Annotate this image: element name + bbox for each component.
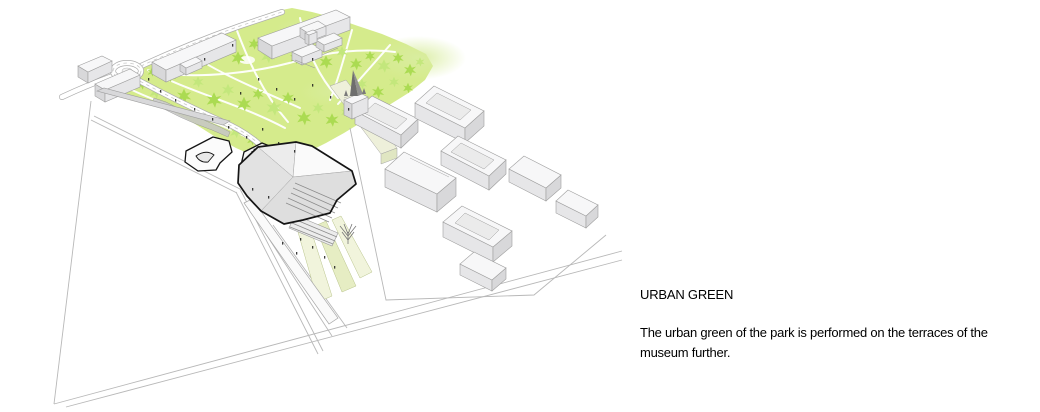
museum-forecourt-building [185,137,232,171]
city-block [415,86,484,143]
museum-complex [185,137,356,224]
caption-body-line-1: The urban green of the park is performed… [640,323,1038,343]
city-block [460,252,506,291]
page: URBAN GREEN The urban green of the park … [0,0,1040,412]
caption-body-line-2: museum further. [640,343,1038,363]
caption-body: The urban green of the park is performed… [640,323,1038,363]
city-block [509,156,561,201]
city-block [556,190,598,228]
green-glow [370,36,466,80]
city-blocks [355,86,598,291]
caption-title: URBAN GREEN [640,288,1038,301]
caption-block: URBAN GREEN The urban green of the park … [640,288,1038,363]
site-axonometric-illustration [0,0,640,412]
